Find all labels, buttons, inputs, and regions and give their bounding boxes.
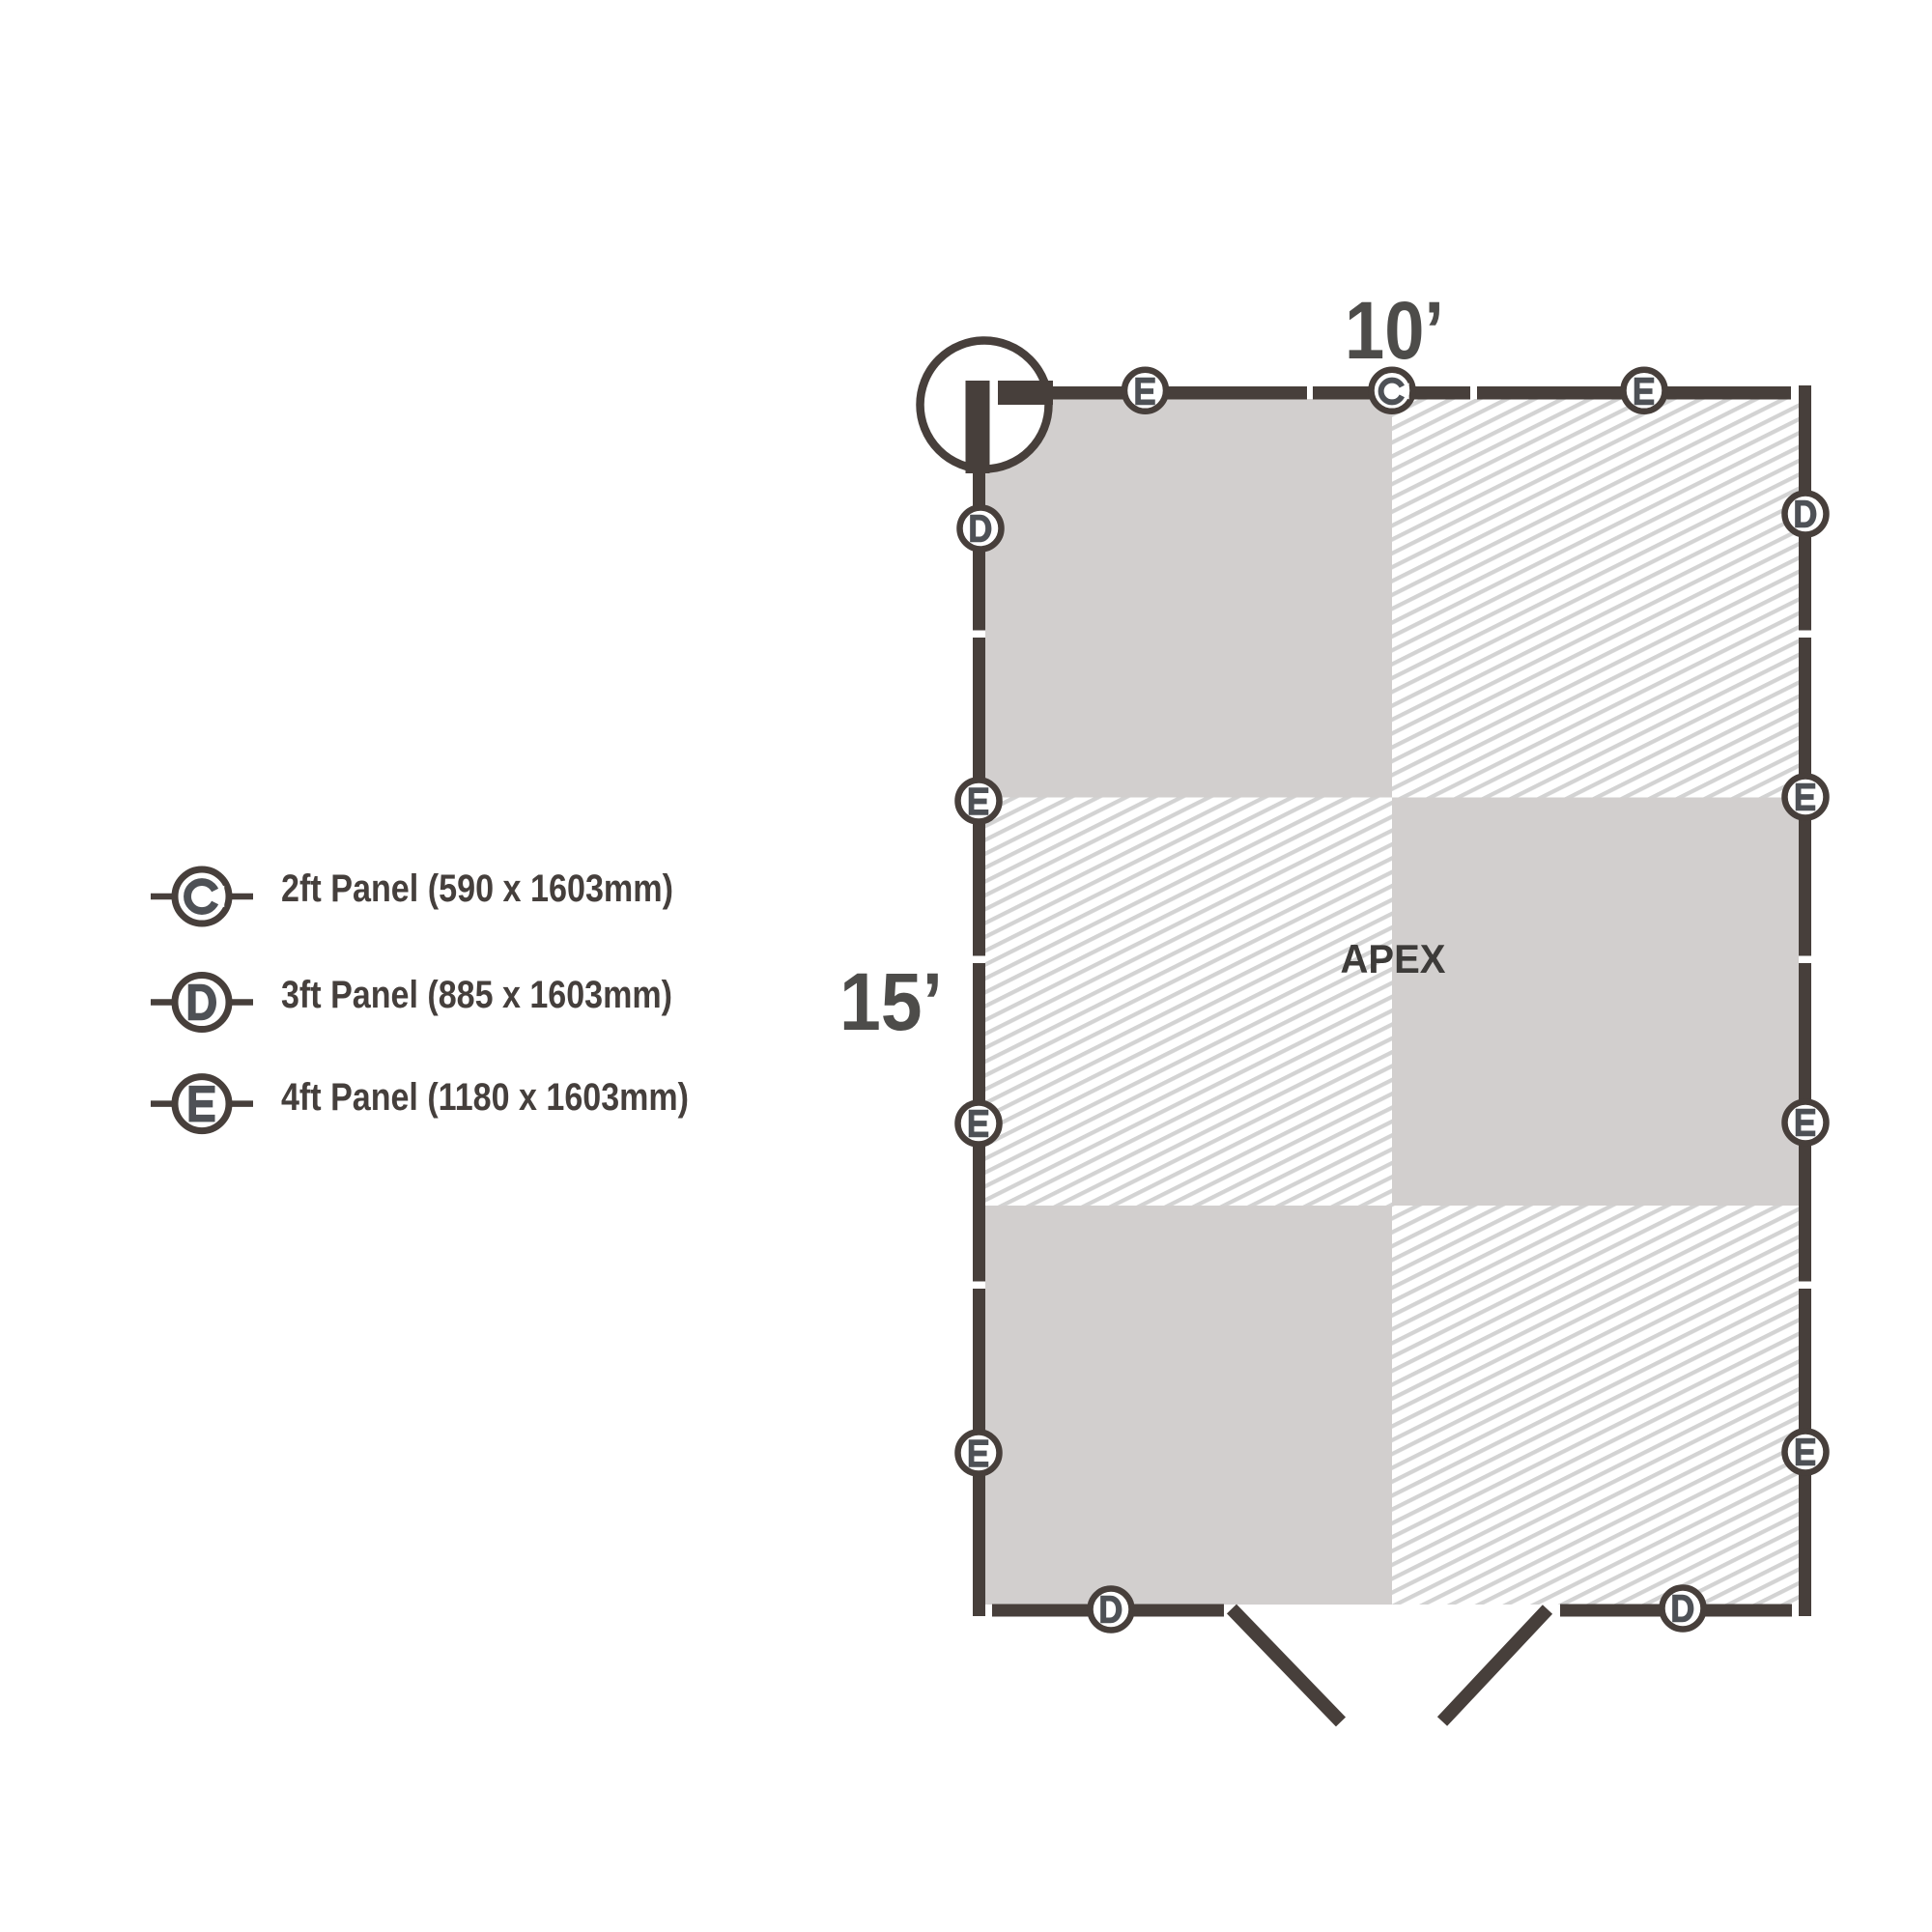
- svg-text:3ft Panel (885 x 1603mm): 3ft Panel (885 x 1603mm): [281, 974, 672, 1016]
- svg-text:10’: 10’: [1345, 285, 1444, 376]
- svg-text:APEX: APEX: [1341, 936, 1446, 981]
- svg-text:4ft Panel (1180 x 1603mm): 4ft Panel (1180 x 1603mm): [281, 1076, 689, 1119]
- svg-text:15’: 15’: [839, 956, 943, 1047]
- svg-text:2ft Panel (590 x 1603mm): 2ft Panel (590 x 1603mm): [281, 867, 673, 910]
